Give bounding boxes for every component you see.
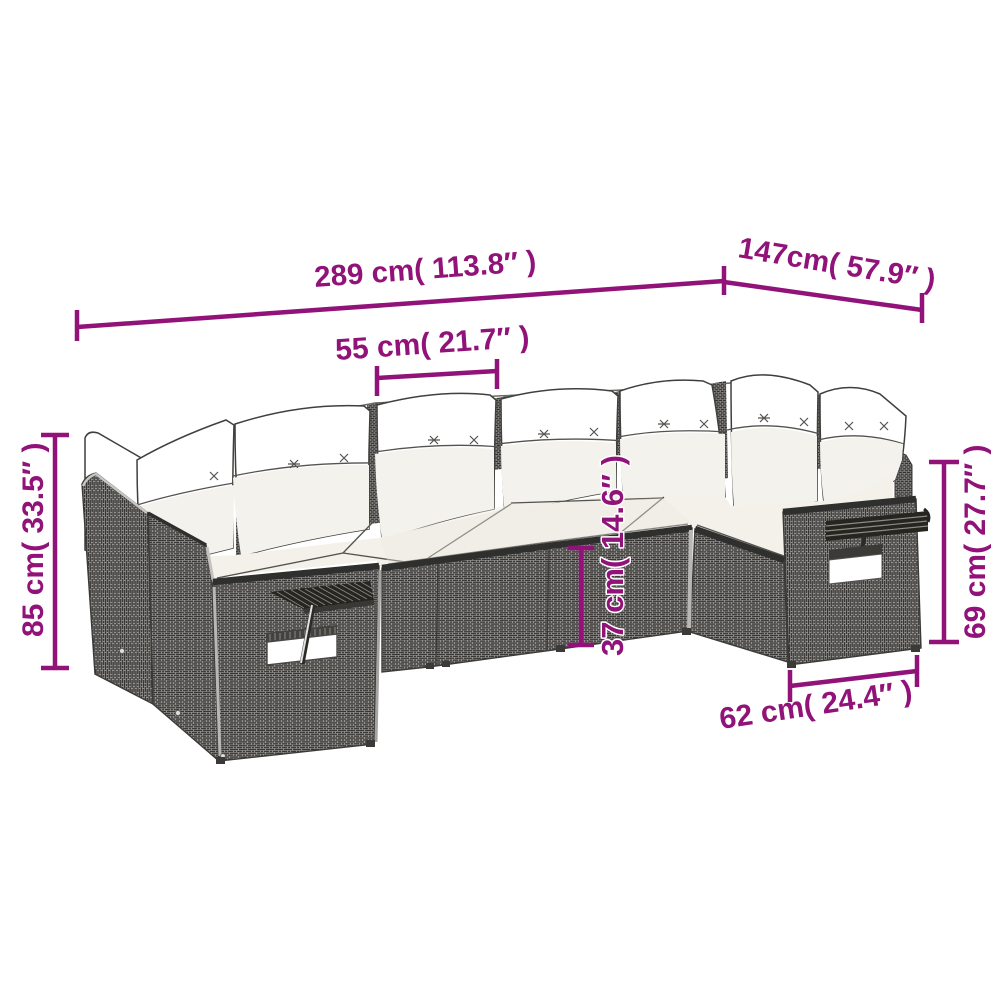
svg-text:37 cm( 14.6″ ): 37 cm( 14.6″ ) [595,455,630,656]
svg-text:289 cm( 113.8″ ): 289 cm( 113.8″ ) [313,245,537,294]
svg-text:85 cm( 33.5″ ): 85 cm( 33.5″ ) [17,443,50,637]
svg-text:55 cm( 21.7″ ): 55 cm( 21.7″ ) [334,320,530,366]
svg-text:69 cm( 27.7″ ): 69 cm( 27.7″ ) [959,445,992,639]
